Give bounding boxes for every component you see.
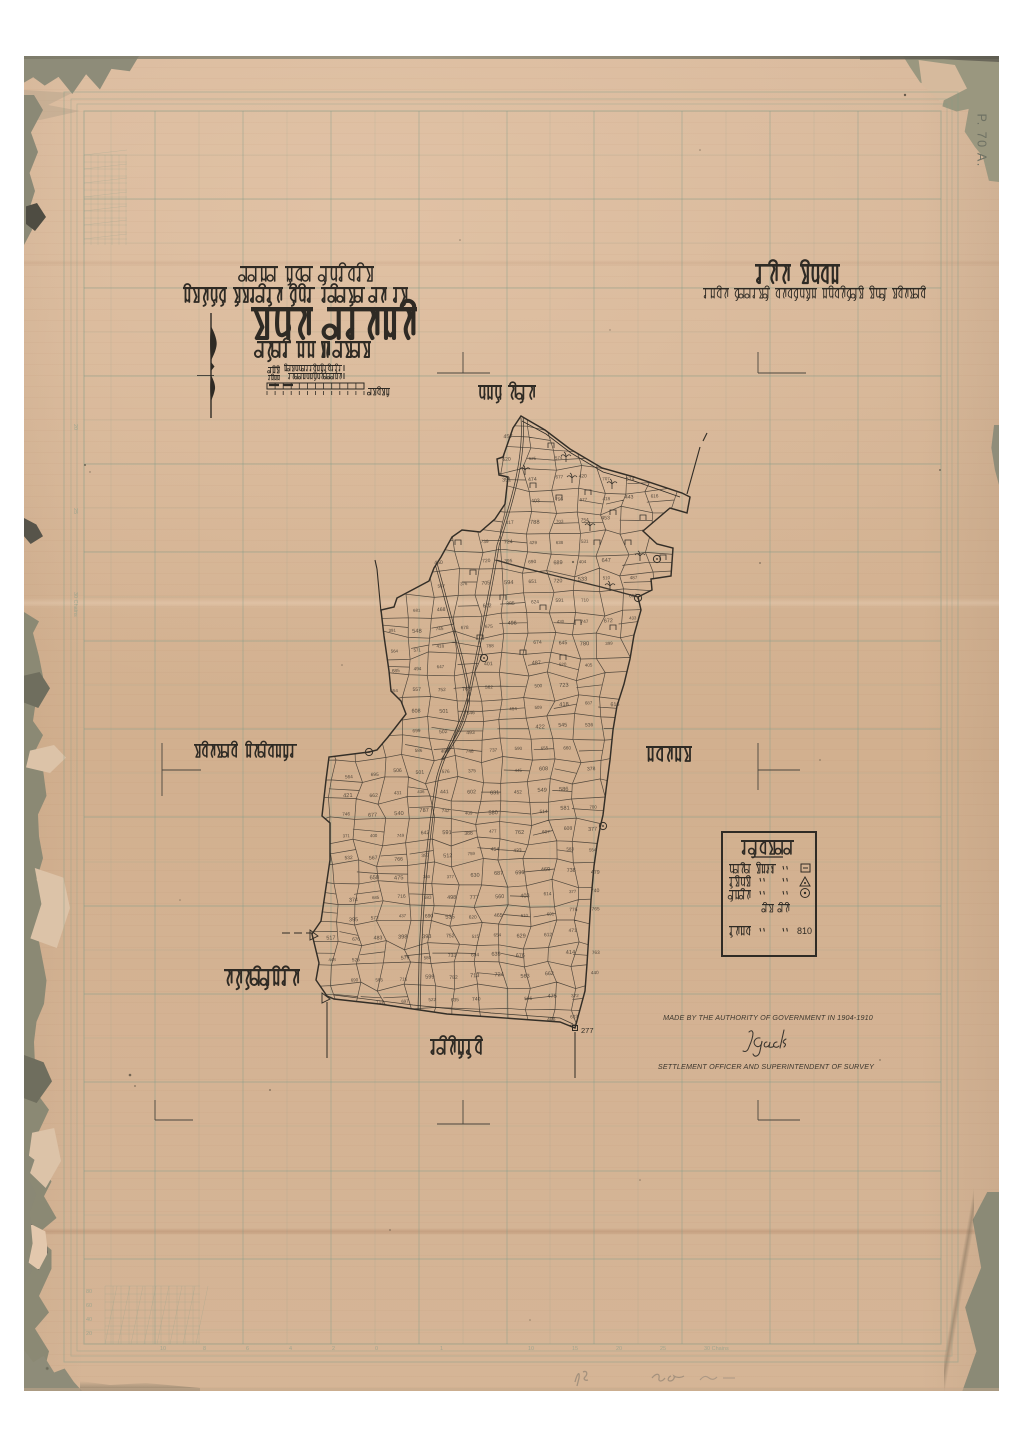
- svg-text:608: 608: [564, 826, 573, 832]
- svg-text:532: 532: [344, 855, 353, 861]
- svg-text:421: 421: [343, 793, 353, 799]
- svg-text:445: 445: [515, 768, 523, 773]
- svg-text:723: 723: [559, 683, 569, 689]
- svg-text:647: 647: [601, 558, 611, 564]
- svg-text:720: 720: [482, 558, 491, 564]
- svg-text:395: 395: [349, 917, 358, 923]
- svg-text:638: 638: [556, 540, 564, 545]
- svg-text:1: 1: [440, 1346, 443, 1352]
- svg-text:629: 629: [516, 933, 525, 939]
- svg-text:30 Chains: 30 Chains: [72, 592, 78, 617]
- svg-text:417: 417: [505, 520, 514, 526]
- svg-text:60: 60: [86, 1303, 92, 1309]
- svg-text:20: 20: [72, 424, 78, 430]
- svg-text:586: 586: [415, 748, 423, 753]
- svg-text:594: 594: [504, 580, 514, 586]
- svg-text:703: 703: [556, 519, 564, 524]
- svg-text:765: 765: [592, 906, 601, 912]
- svg-text:567: 567: [369, 855, 378, 861]
- svg-text:614: 614: [543, 891, 551, 896]
- svg-text:696: 696: [629, 593, 638, 599]
- svg-text:724: 724: [504, 539, 513, 545]
- svg-text:397: 397: [421, 853, 430, 859]
- svg-text:448: 448: [328, 957, 336, 962]
- svg-text:571: 571: [413, 647, 421, 652]
- svg-text:496: 496: [508, 620, 517, 626]
- svg-text:506: 506: [393, 768, 402, 774]
- svg-text:610: 610: [521, 913, 529, 918]
- svg-text:695: 695: [371, 772, 380, 778]
- svg-text:677: 677: [368, 812, 377, 818]
- svg-text:457: 457: [503, 434, 512, 440]
- svg-text:763: 763: [592, 950, 601, 956]
- svg-text:80: 80: [86, 1289, 92, 1295]
- svg-text:10: 10: [528, 1346, 534, 1352]
- svg-text:739: 739: [481, 539, 489, 544]
- svg-text:762: 762: [515, 830, 525, 836]
- svg-text:574: 574: [555, 455, 563, 460]
- svg-text:391: 391: [502, 477, 511, 483]
- svg-text:418: 418: [602, 496, 610, 501]
- svg-text:567: 567: [437, 583, 445, 588]
- svg-text:564: 564: [391, 648, 399, 653]
- svg-text:625: 625: [529, 456, 537, 461]
- svg-text:560: 560: [495, 894, 504, 900]
- svg-text:591: 591: [555, 598, 564, 604]
- svg-text:675: 675: [485, 624, 493, 629]
- svg-text:787: 787: [419, 808, 429, 814]
- svg-text:566: 566: [524, 996, 532, 1001]
- svg-text:10: 10: [160, 1346, 166, 1352]
- svg-text:385: 385: [506, 601, 515, 607]
- svg-text:678: 678: [461, 625, 469, 630]
- svg-text:418: 418: [559, 702, 569, 708]
- svg-text:710: 710: [581, 597, 589, 602]
- svg-text:766: 766: [394, 857, 403, 863]
- svg-text:6: 6: [246, 1346, 249, 1352]
- svg-text:748: 748: [466, 749, 474, 754]
- svg-text:493: 493: [466, 730, 475, 736]
- svg-text:747: 747: [581, 619, 589, 624]
- svg-text:391: 391: [388, 628, 396, 633]
- svg-text:468: 468: [437, 607, 446, 613]
- svg-text:15: 15: [572, 1346, 578, 1352]
- svg-text:581: 581: [560, 806, 570, 812]
- svg-text:756: 756: [555, 497, 564, 503]
- svg-text:431: 431: [394, 790, 402, 795]
- svg-text:MADE BY THE AUTHORITY OF GOVE: MADE BY THE AUTHORITY OF GOVERNMENT IN 1…: [663, 1013, 873, 1022]
- svg-text:409: 409: [465, 810, 473, 815]
- svg-text:672: 672: [604, 618, 613, 624]
- svg-text:685: 685: [372, 895, 380, 900]
- svg-text:436: 436: [417, 789, 425, 794]
- svg-text:564: 564: [345, 774, 353, 779]
- svg-text:654: 654: [493, 932, 501, 937]
- svg-text:515: 515: [472, 934, 480, 939]
- svg-text:405: 405: [585, 662, 593, 667]
- svg-text:602: 602: [483, 603, 492, 609]
- svg-text:563: 563: [520, 974, 529, 980]
- svg-text:662: 662: [545, 971, 554, 977]
- svg-text:690: 690: [425, 913, 434, 919]
- svg-text:713: 713: [470, 973, 480, 979]
- svg-text:660: 660: [563, 745, 571, 750]
- svg-text:746: 746: [342, 811, 350, 816]
- svg-text:377: 377: [447, 874, 455, 879]
- svg-text:401: 401: [484, 661, 493, 667]
- svg-text:699: 699: [412, 728, 421, 734]
- svg-text:647: 647: [437, 664, 445, 669]
- svg-text:465: 465: [494, 913, 503, 919]
- svg-text:724: 724: [494, 972, 504, 978]
- svg-text:694: 694: [471, 952, 480, 958]
- svg-text:707: 707: [602, 476, 610, 481]
- svg-text:662: 662: [369, 793, 378, 799]
- svg-text:554: 554: [391, 688, 399, 693]
- svg-text:441: 441: [440, 789, 449, 795]
- svg-text:514: 514: [626, 476, 635, 482]
- svg-text:580: 580: [488, 810, 498, 816]
- svg-text:494: 494: [413, 666, 421, 671]
- svg-text:591: 591: [442, 830, 452, 836]
- svg-text:450: 450: [434, 560, 443, 566]
- svg-text:645: 645: [559, 640, 568, 646]
- svg-text:616: 616: [610, 702, 619, 708]
- svg-text:471: 471: [569, 928, 578, 934]
- svg-text:577: 577: [580, 497, 588, 502]
- svg-text:554: 554: [589, 847, 597, 852]
- svg-text:422: 422: [535, 724, 545, 730]
- svg-text:745: 745: [436, 626, 444, 631]
- svg-text:399: 399: [605, 641, 613, 646]
- svg-text:782: 782: [449, 975, 458, 981]
- svg-text:590: 590: [514, 746, 522, 751]
- svg-text:545: 545: [558, 722, 567, 728]
- svg-text:377: 377: [588, 827, 597, 833]
- svg-text:469: 469: [541, 867, 551, 873]
- svg-text:393: 393: [422, 934, 431, 940]
- svg-text:371: 371: [343, 833, 351, 838]
- svg-text:674: 674: [533, 640, 542, 646]
- svg-text:740: 740: [591, 888, 600, 894]
- svg-text:572: 572: [371, 915, 380, 921]
- svg-text:780: 780: [580, 641, 590, 647]
- svg-text:430: 430: [557, 619, 565, 624]
- svg-text:429: 429: [529, 540, 537, 545]
- svg-text:8: 8: [203, 1346, 206, 1352]
- svg-text:631: 631: [490, 790, 499, 796]
- svg-text:608: 608: [539, 766, 548, 772]
- svg-text:689: 689: [553, 560, 562, 566]
- svg-text:501: 501: [416, 770, 425, 776]
- svg-text:655: 655: [541, 745, 549, 750]
- svg-text:740: 740: [472, 996, 481, 1002]
- svg-text:788: 788: [530, 520, 540, 526]
- svg-text:752: 752: [446, 933, 455, 939]
- svg-text:SETTLEMENT OFFICER AND SUPERIN: SETTLEMENT OFFICER AND SUPERINTENDENT OF…: [658, 1062, 875, 1071]
- svg-text:398: 398: [398, 934, 408, 940]
- svg-text:25: 25: [660, 1346, 666, 1352]
- svg-text:738: 738: [567, 868, 576, 874]
- svg-text:20: 20: [86, 1331, 92, 1337]
- svg-text:623: 623: [570, 1014, 578, 1019]
- svg-text:687: 687: [585, 700, 593, 705]
- svg-text:433: 433: [513, 848, 522, 854]
- svg-text:583: 583: [566, 846, 574, 851]
- svg-text:418: 418: [436, 644, 444, 649]
- svg-text:687: 687: [494, 871, 503, 877]
- svg-text:377: 377: [569, 889, 577, 894]
- svg-text:562: 562: [485, 685, 493, 690]
- svg-text:487: 487: [441, 749, 449, 754]
- svg-text:646: 646: [467, 710, 476, 716]
- svg-text:777: 777: [469, 895, 479, 901]
- svg-text:522: 522: [428, 997, 436, 1002]
- svg-text:712: 712: [376, 999, 385, 1005]
- svg-text:372: 372: [571, 993, 579, 998]
- svg-text:420: 420: [579, 473, 588, 479]
- svg-text:454: 454: [490, 847, 499, 853]
- svg-text:20: 20: [616, 1346, 622, 1352]
- svg-text:691: 691: [547, 911, 555, 916]
- svg-text:40: 40: [86, 1317, 92, 1323]
- svg-text:616: 616: [651, 493, 659, 498]
- svg-text:705: 705: [481, 580, 490, 586]
- svg-text:540: 540: [394, 811, 404, 817]
- svg-text:620: 620: [502, 457, 511, 463]
- svg-text:477: 477: [489, 829, 497, 834]
- svg-text:658: 658: [369, 875, 379, 881]
- svg-text:754: 754: [581, 517, 590, 523]
- svg-text:620: 620: [469, 915, 477, 920]
- svg-text:548: 548: [412, 629, 422, 635]
- svg-text:277: 277: [581, 1026, 594, 1035]
- svg-text:759: 759: [467, 851, 475, 856]
- svg-text:474: 474: [528, 477, 537, 483]
- svg-text:414: 414: [566, 950, 576, 956]
- svg-text:536: 536: [585, 722, 594, 728]
- svg-text:475: 475: [394, 875, 404, 881]
- svg-text:487: 487: [630, 575, 638, 580]
- svg-text:380: 380: [423, 874, 431, 879]
- svg-text:681: 681: [413, 608, 421, 613]
- svg-text:579: 579: [401, 955, 410, 961]
- svg-text:580: 580: [424, 955, 432, 960]
- svg-text:437: 437: [399, 913, 407, 918]
- svg-text:433: 433: [629, 615, 637, 620]
- svg-text:376: 376: [460, 581, 468, 586]
- svg-text:517: 517: [326, 935, 335, 941]
- svg-text:512: 512: [443, 853, 452, 859]
- svg-text:533: 533: [578, 577, 588, 583]
- svg-text:475: 475: [547, 994, 557, 1000]
- svg-text:500: 500: [534, 683, 542, 688]
- svg-text:624: 624: [531, 599, 539, 604]
- svg-text:501: 501: [439, 709, 448, 715]
- svg-text:453: 453: [601, 515, 610, 521]
- svg-text:375: 375: [468, 768, 476, 773]
- svg-text:716: 716: [397, 894, 406, 900]
- svg-text:549: 549: [537, 788, 547, 794]
- svg-text:525: 525: [352, 957, 361, 963]
- svg-text:535: 535: [445, 914, 455, 920]
- svg-text:642: 642: [421, 830, 430, 836]
- svg-text:586: 586: [559, 787, 569, 793]
- svg-text:510: 510: [603, 575, 611, 580]
- svg-text:388: 388: [464, 831, 473, 837]
- svg-text:395: 395: [504, 558, 513, 564]
- svg-text:651: 651: [528, 579, 537, 585]
- svg-text:487: 487: [532, 660, 541, 666]
- svg-text:502: 502: [439, 729, 448, 735]
- svg-text:630: 630: [470, 873, 479, 879]
- svg-text:557: 557: [413, 687, 422, 693]
- svg-text:677: 677: [555, 474, 563, 479]
- svg-text:607: 607: [542, 829, 550, 834]
- svg-text:599: 599: [425, 974, 435, 980]
- svg-text:639: 639: [491, 952, 501, 958]
- svg-text:720: 720: [553, 578, 562, 584]
- svg-text:400: 400: [370, 833, 378, 838]
- svg-text:737: 737: [489, 747, 497, 752]
- svg-text:685: 685: [392, 668, 400, 673]
- svg-text:514: 514: [540, 809, 549, 815]
- svg-text:404: 404: [579, 559, 587, 564]
- svg-text:788: 788: [486, 643, 494, 648]
- svg-text:776: 776: [569, 907, 578, 913]
- svg-text:25: 25: [72, 508, 78, 514]
- svg-text:440: 440: [591, 970, 599, 975]
- svg-text:30 Chains: 30 Chains: [704, 1346, 729, 1352]
- svg-text:752: 752: [438, 687, 447, 693]
- svg-text:403: 403: [520, 893, 530, 899]
- svg-text:479: 479: [591, 870, 600, 876]
- svg-text:509: 509: [534, 705, 542, 710]
- svg-text:608: 608: [411, 708, 420, 714]
- svg-text:484: 484: [509, 706, 517, 711]
- svg-text:696: 696: [515, 870, 524, 876]
- svg-text:452: 452: [514, 789, 523, 795]
- svg-text:635: 635: [451, 997, 460, 1003]
- svg-text:676: 676: [516, 953, 525, 959]
- svg-text:4: 4: [289, 1346, 292, 1352]
- svg-text:697: 697: [401, 999, 409, 1004]
- svg-text:2: 2: [332, 1346, 335, 1352]
- svg-text:531: 531: [581, 539, 589, 544]
- svg-text:602: 602: [467, 789, 476, 795]
- svg-text:498: 498: [447, 895, 456, 901]
- svg-text:612: 612: [544, 932, 553, 938]
- svg-text:378: 378: [587, 766, 596, 772]
- svg-text:576: 576: [442, 769, 451, 775]
- svg-text:520: 520: [559, 662, 567, 667]
- svg-text:585: 585: [375, 977, 383, 982]
- svg-text:733: 733: [448, 953, 457, 959]
- svg-text:583: 583: [424, 895, 432, 900]
- svg-text:443: 443: [625, 494, 634, 500]
- svg-text:0: 0: [375, 1346, 378, 1352]
- svg-text:700: 700: [589, 804, 597, 809]
- svg-text:716: 716: [400, 976, 408, 981]
- svg-text:690: 690: [528, 559, 537, 565]
- svg-text:676: 676: [352, 937, 360, 942]
- svg-text:690: 690: [351, 977, 359, 982]
- svg-text:483: 483: [374, 935, 383, 941]
- svg-text:403: 403: [531, 498, 540, 504]
- svg-text:374: 374: [349, 897, 358, 903]
- svg-text:488: 488: [547, 1017, 556, 1023]
- svg-text:742: 742: [442, 808, 450, 813]
- svg-text:810: 810: [797, 926, 812, 936]
- svg-text:763: 763: [462, 686, 472, 692]
- svg-text:749: 749: [397, 833, 405, 838]
